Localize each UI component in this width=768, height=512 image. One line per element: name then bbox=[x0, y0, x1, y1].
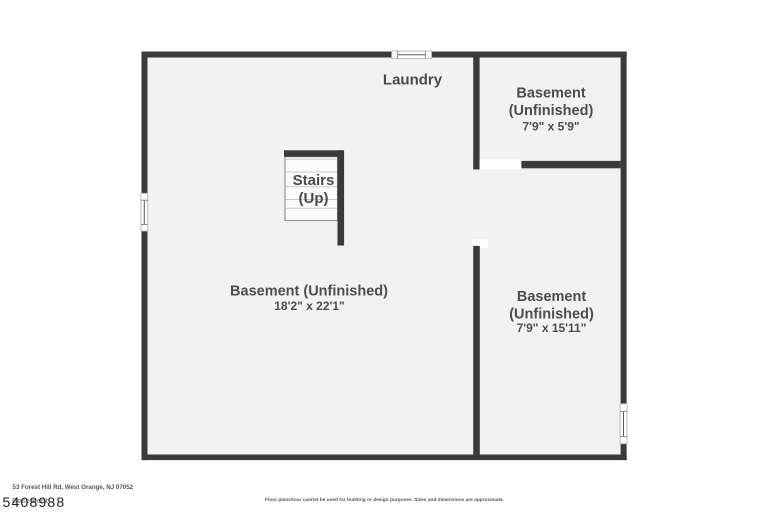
svg-text:7'9" x 15'11": 7'9" x 15'11" bbox=[517, 321, 587, 335]
svg-text:(Unfinished): (Unfinished) bbox=[509, 306, 594, 322]
svg-text:Basement (Unfinished): Basement (Unfinished) bbox=[230, 283, 388, 299]
svg-text:Basement: Basement bbox=[517, 289, 586, 305]
svg-text:5408988: 5408988 bbox=[3, 494, 66, 510]
svg-text:Stairs: Stairs bbox=[293, 172, 335, 189]
svg-text:Basement: Basement bbox=[516, 86, 585, 102]
svg-text:(Unfinished): (Unfinished) bbox=[509, 103, 594, 119]
svg-text:(Up): (Up) bbox=[299, 190, 329, 207]
svg-text:Floor plans/tour cannot be use: Floor plans/tour cannot be used for buil… bbox=[265, 497, 504, 503]
svg-text:Laundry: Laundry bbox=[383, 72, 443, 89]
svg-text:18'2" x 22'1": 18'2" x 22'1" bbox=[274, 299, 344, 313]
svg-text:7'9" x 5'9": 7'9" x 5'9" bbox=[522, 120, 579, 134]
svg-text:53 Forest Hill Rd, West Orange: 53 Forest Hill Rd, West Orange, NJ 07052 bbox=[13, 484, 134, 491]
